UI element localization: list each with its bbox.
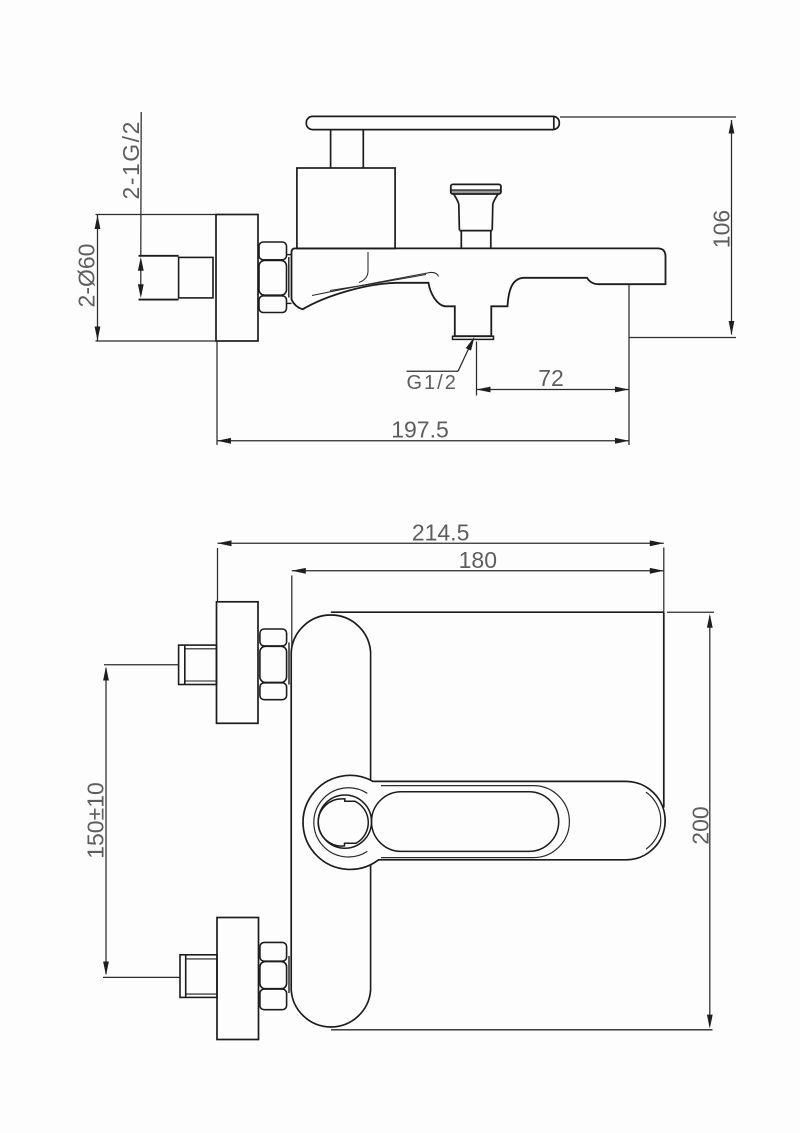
svg-text:180: 180	[459, 547, 497, 573]
svg-text:72: 72	[538, 365, 564, 391]
svg-text:G1/2: G1/2	[407, 372, 458, 394]
svg-text:200: 200	[687, 806, 713, 844]
svg-text:214.5: 214.5	[412, 519, 470, 545]
svg-text:150±10: 150±10	[83, 782, 109, 859]
svg-text:197.5: 197.5	[391, 417, 449, 443]
svg-text:2-1G/2: 2-1G/2	[118, 120, 144, 199]
svg-text:106: 106	[709, 210, 735, 248]
svg-text:2-Ø60: 2-Ø60	[74, 244, 100, 308]
